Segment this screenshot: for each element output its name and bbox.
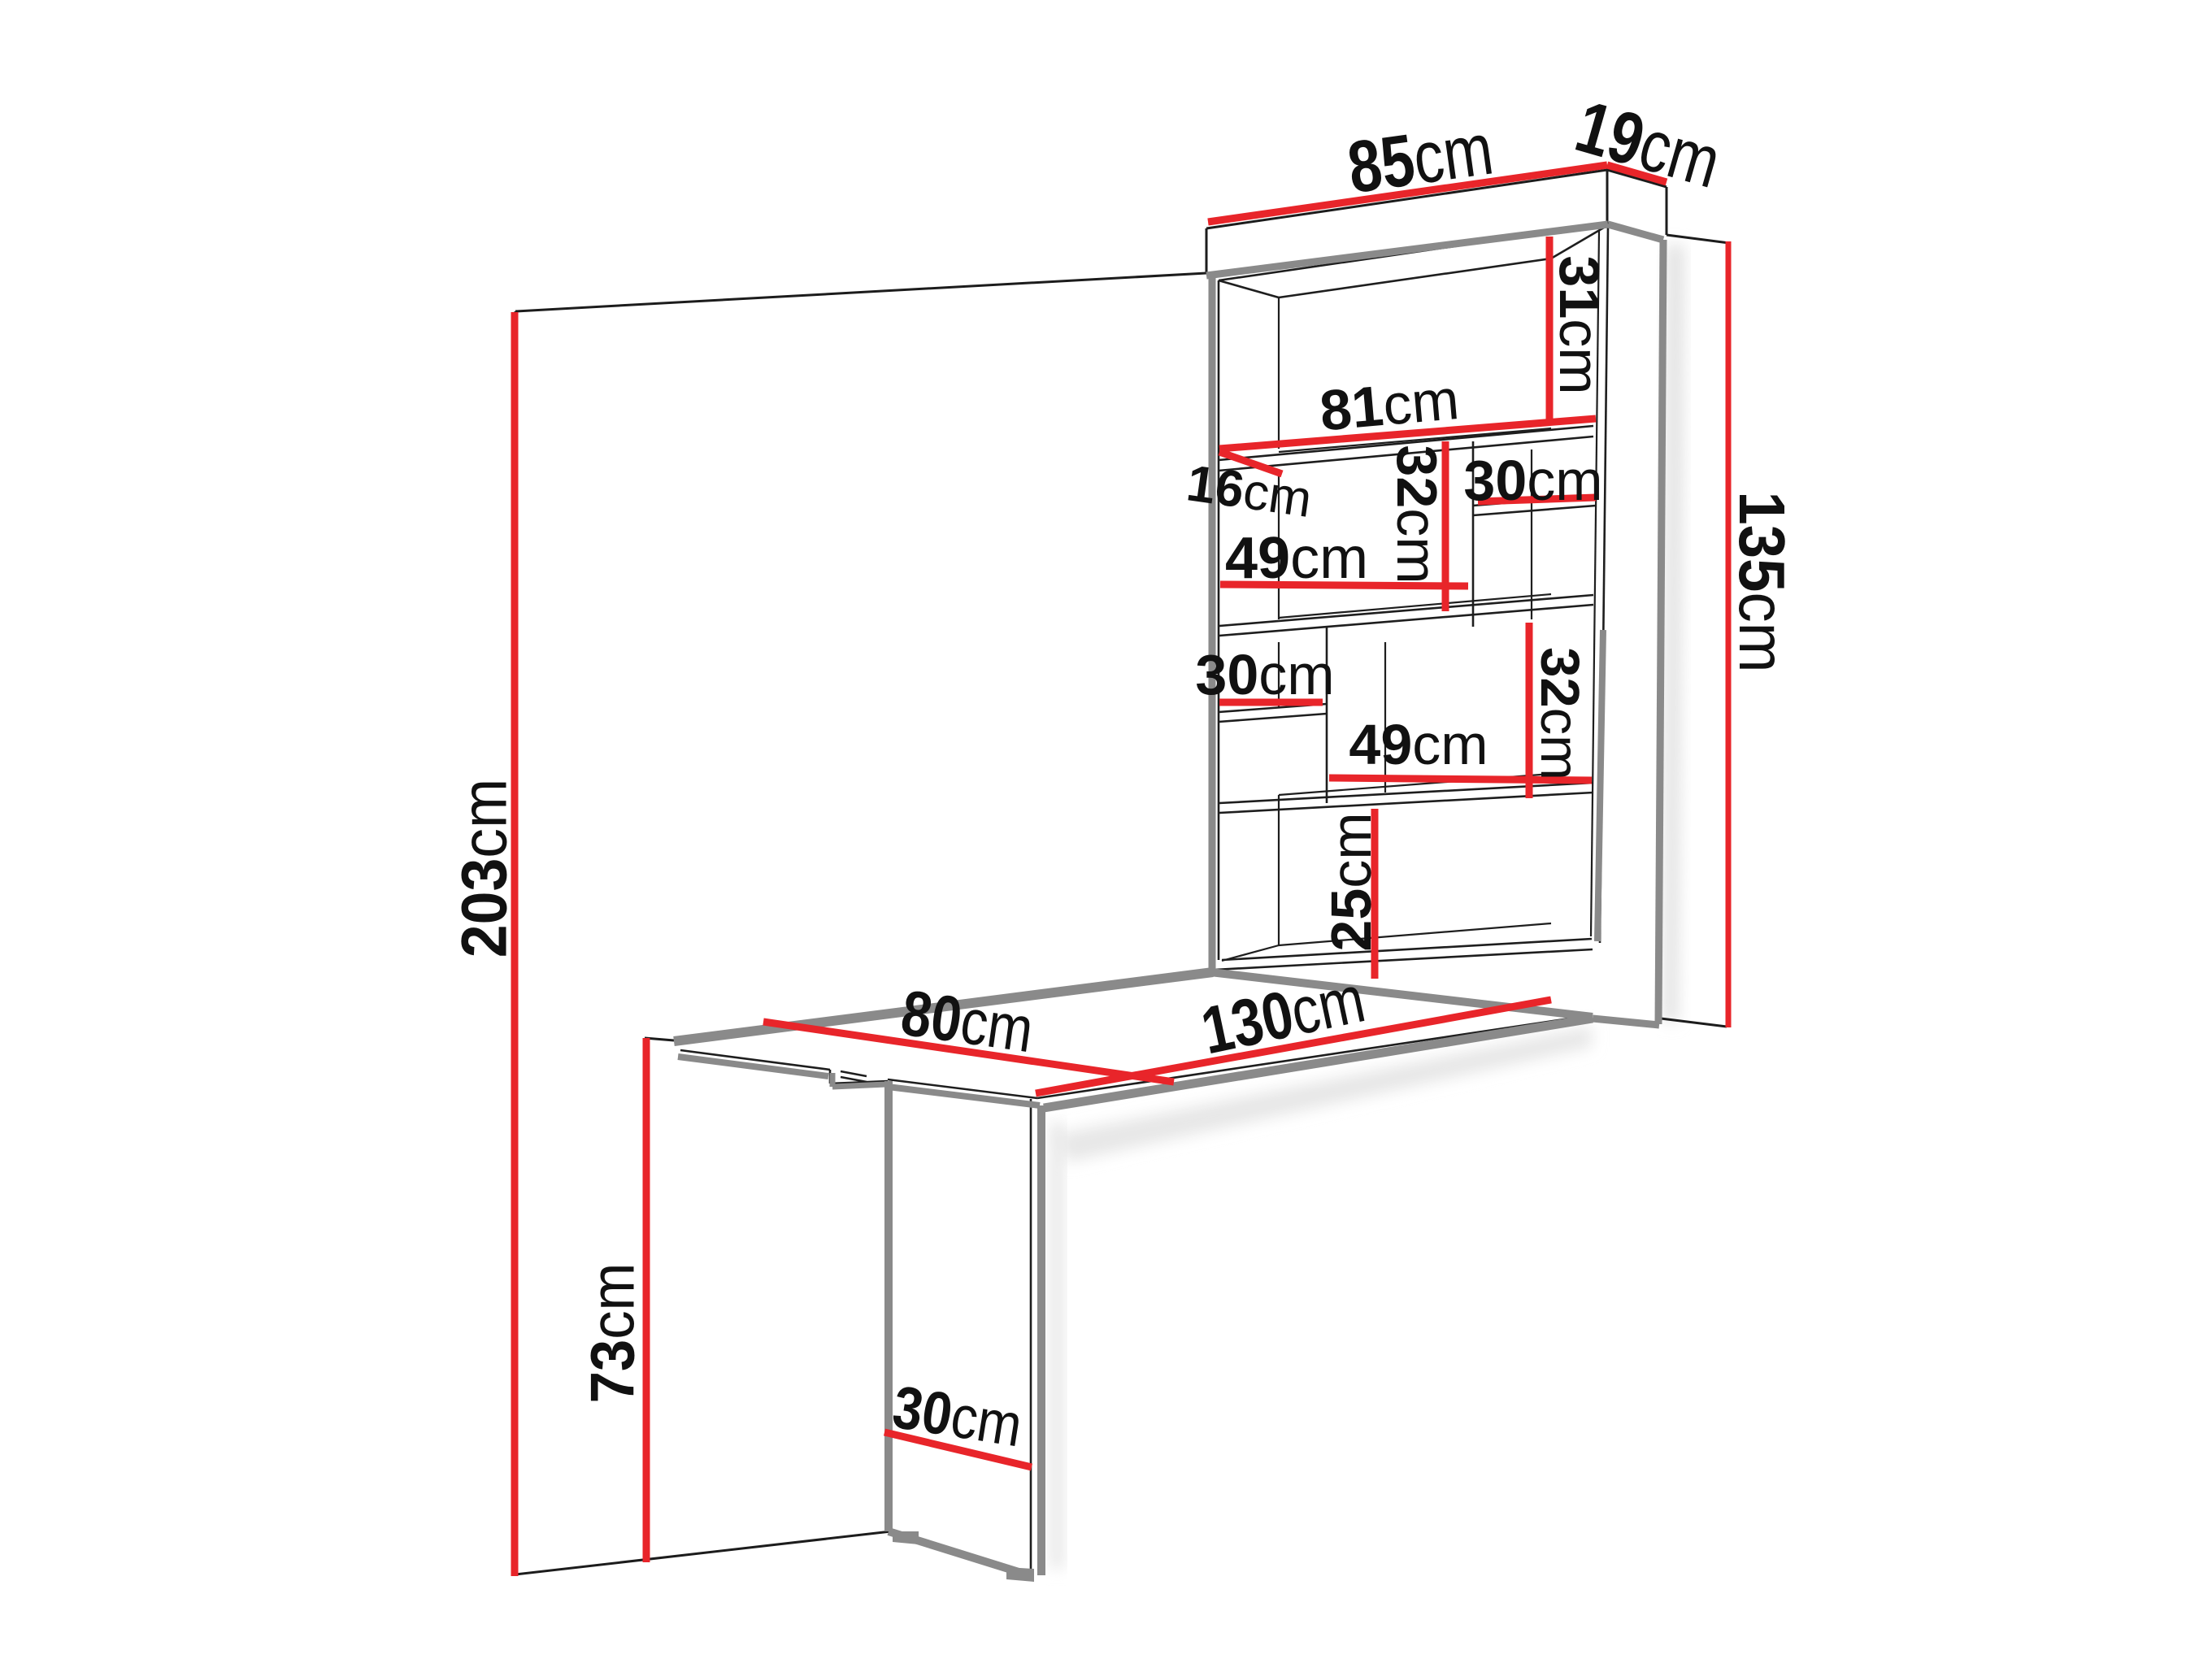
svg-text:32cm: 32cm: [1529, 647, 1590, 780]
svg-text:49cm: 49cm: [1225, 526, 1368, 591]
svg-text:85cm: 85cm: [1343, 108, 1497, 209]
svg-text:19cm: 19cm: [1567, 85, 1729, 203]
svg-text:203cm: 203cm: [449, 779, 520, 958]
svg-text:25cm: 25cm: [1319, 812, 1383, 951]
svg-text:30cm: 30cm: [889, 1373, 1027, 1460]
svg-text:16cm: 16cm: [1184, 454, 1315, 528]
svg-text:135cm: 135cm: [1726, 491, 1798, 672]
svg-text:73cm: 73cm: [578, 1263, 647, 1404]
svg-text:30cm: 30cm: [1463, 449, 1602, 512]
svg-text:31cm: 31cm: [1548, 255, 1611, 394]
svg-text:80cm: 80cm: [897, 977, 1037, 1066]
svg-text:81cm: 81cm: [1317, 367, 1461, 443]
svg-text:32cm: 32cm: [1385, 445, 1449, 584]
svg-text:49cm: 49cm: [1349, 713, 1488, 776]
svg-text:30cm: 30cm: [1195, 643, 1334, 706]
